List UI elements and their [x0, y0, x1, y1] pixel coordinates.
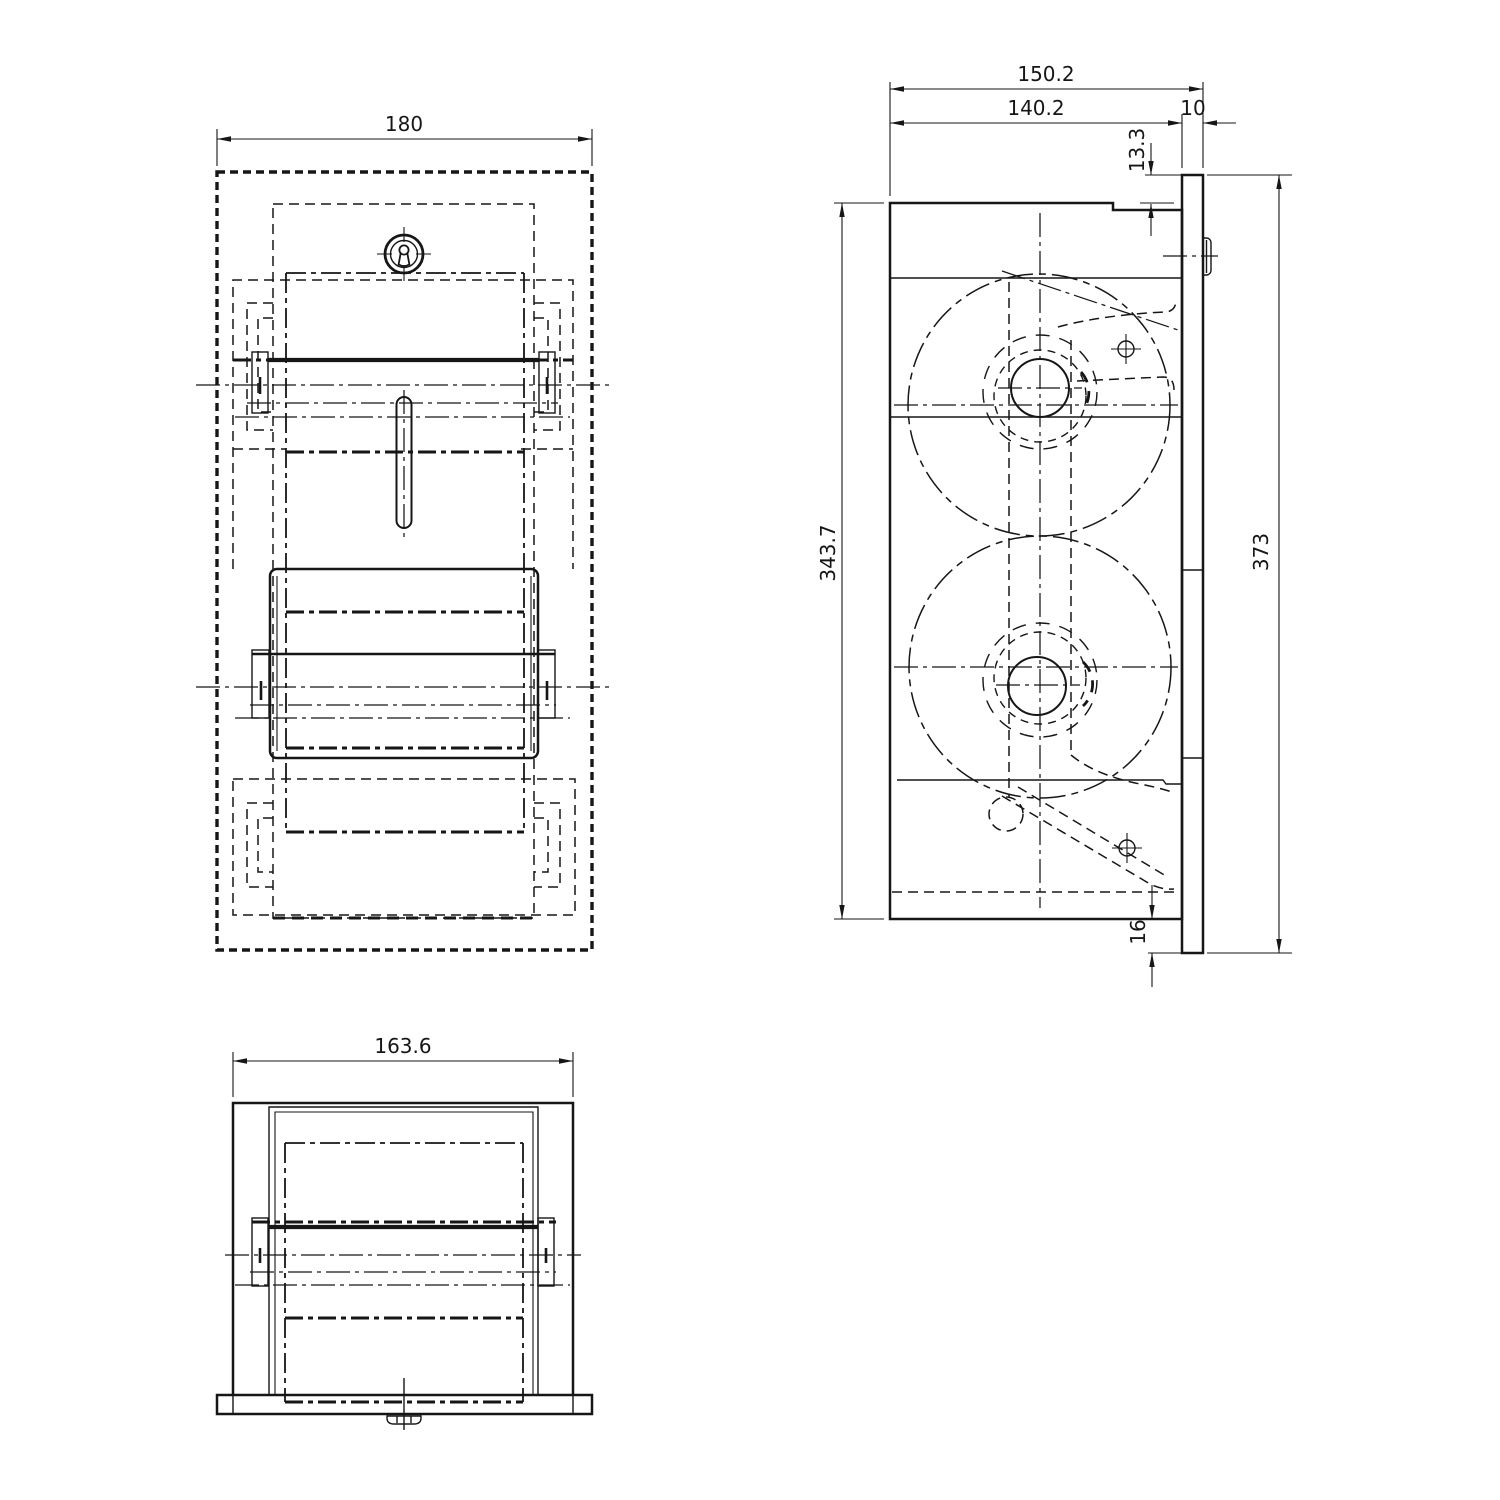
dim-front-width-label: 180: [385, 112, 423, 136]
lower-swing-arm: [1002, 755, 1174, 889]
lower-hub: [1008, 657, 1066, 715]
dim-bottom-offset-label: 16: [1126, 919, 1150, 944]
cad-drawing: 180: [0, 0, 1500, 1500]
upper-hub-holder-ring: [983, 335, 1097, 449]
flange-joint-ticks: [1182, 570, 1203, 758]
dim-bottom-width-label: 163.6: [374, 1034, 431, 1058]
lower-door-brackets: [247, 803, 560, 887]
bottom-centerlines: [225, 1255, 581, 1285]
dim-flange-thickness-label: 10: [1180, 96, 1205, 120]
upper-swing-arm: [1058, 300, 1176, 390]
dim-top-offset: 13.3: [1125, 128, 1182, 236]
roll-cradle-innerwall: [277, 576, 531, 751]
dim-bottom-width: 163.6: [233, 1034, 573, 1097]
front-view: 180: [196, 112, 610, 950]
bottom-inner-wall2: [275, 1112, 533, 1395]
bottom-inner-wall: [269, 1107, 538, 1395]
lower-hub-arm-arc: [1083, 662, 1093, 706]
position-target-icon-lower: [1112, 833, 1142, 863]
upper-holder-outline: [233, 280, 573, 569]
bottom-box-outline: [233, 1103, 573, 1395]
dim-depth-total-label: 150.2: [1017, 62, 1074, 86]
dim-overall-height-label: 373: [1249, 533, 1273, 571]
bottom-flange-joints: [233, 1395, 573, 1414]
side-box-outline: [890, 203, 1182, 919]
drawing-canvas: 180: [0, 0, 1500, 1500]
bottom-view: 163.6: [217, 1034, 592, 1430]
side-view: 150.2 140.2 10 13.3 343.7: [816, 62, 1292, 987]
door-phantom-edges: [286, 452, 524, 832]
dim-flange-thickness: 10: [1180, 96, 1236, 126]
dim-depth-total: 150.2: [890, 62, 1203, 196]
release-hole-hidden: [989, 797, 1023, 831]
inner-box-outline: [273, 204, 534, 918]
dim-top-offset-label: 13.3: [1125, 128, 1149, 173]
dim-body-height: 343.7: [816, 203, 884, 919]
dim-bottom-offset: 16: [1126, 885, 1182, 987]
side-internal-shelves: [890, 278, 1182, 784]
dim-overall-height: 373: [1207, 175, 1292, 953]
middle-spindle-ticks: [261, 681, 547, 700]
bottom-door-phantom-edges: [252, 1222, 556, 1402]
dim-front-width: 180: [217, 112, 592, 166]
wall-flange: [1182, 175, 1203, 953]
position-target-icon-upper: [1111, 334, 1141, 364]
roll-cradle-outline: [270, 569, 538, 758]
dim-body-height-label: 343.7: [816, 524, 840, 581]
dim-depth-body-label: 140.2: [1007, 96, 1064, 120]
